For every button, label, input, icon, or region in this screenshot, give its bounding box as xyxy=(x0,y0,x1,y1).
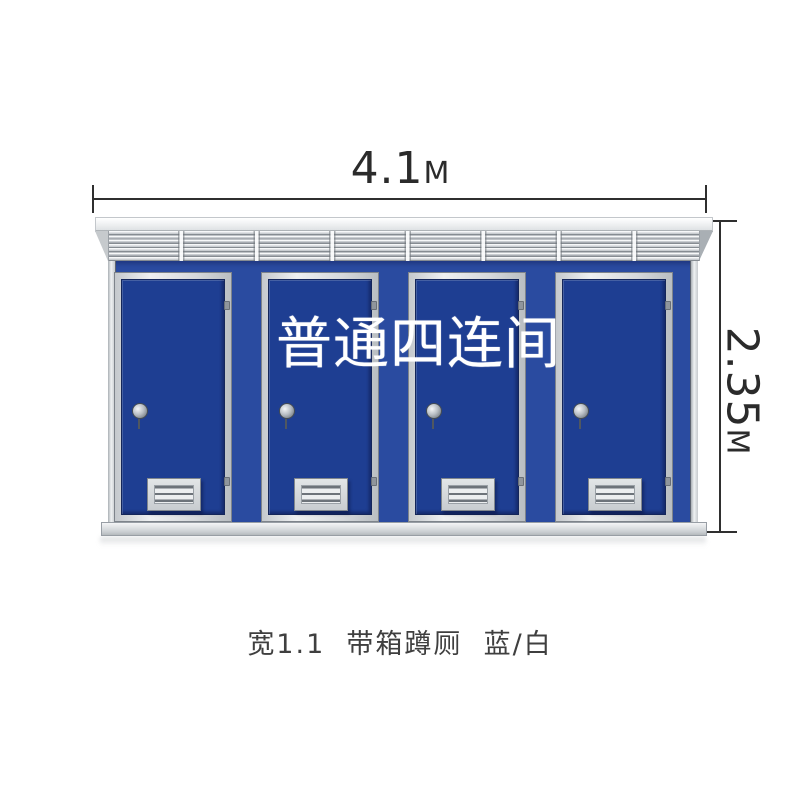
ground-shadow xyxy=(100,537,706,546)
height-value: 2.35 xyxy=(717,326,768,428)
hinge-top xyxy=(224,301,230,310)
height-dimension-label: 2.35M xyxy=(700,295,784,485)
door-knob-icon xyxy=(426,403,442,419)
width-value: 4.1 xyxy=(351,143,424,194)
product-image: 4.1M 2.35M xyxy=(0,0,800,800)
keyhole-icon xyxy=(579,419,581,429)
door-unit xyxy=(555,272,673,522)
door-vent-louver xyxy=(294,478,348,511)
overlay-title: 普通四连间 xyxy=(276,314,561,376)
width-dimension-line xyxy=(93,198,707,200)
hinge-top xyxy=(518,301,524,310)
keyhole-icon xyxy=(285,419,287,429)
width-unit: M xyxy=(424,156,450,191)
roof-eave-right xyxy=(699,231,713,261)
height-dimension-tick-bottom xyxy=(704,531,737,533)
door-vent-louver xyxy=(588,478,642,511)
door-vent-slats xyxy=(595,485,635,504)
roof-vent-louver xyxy=(108,231,700,261)
roof-cap xyxy=(95,217,713,232)
door-knob-icon xyxy=(573,403,589,419)
door-vent-slats xyxy=(448,485,488,504)
caption-text: 宽1.1 带箱蹲厕 蓝/白 xyxy=(0,622,800,661)
roof-eave-left xyxy=(95,231,108,261)
door-knob-icon xyxy=(279,403,295,419)
door-unit xyxy=(114,272,232,522)
door-unit xyxy=(261,272,379,522)
door-vent-slats xyxy=(301,485,341,504)
corner-trim-right xyxy=(690,261,698,522)
hinge-bottom xyxy=(518,477,524,486)
door-row xyxy=(114,272,674,522)
width-dimension-label: 4.1M xyxy=(93,146,707,192)
door-vent-slats xyxy=(154,485,194,504)
hinge-bottom xyxy=(665,477,671,486)
door-unit xyxy=(408,272,526,522)
door-vent-louver xyxy=(147,478,201,511)
keyhole-icon xyxy=(432,419,434,429)
height-unit: M xyxy=(720,428,755,454)
hinge-bottom xyxy=(224,477,230,486)
width-dimension-tick-right xyxy=(705,185,707,213)
hinge-top xyxy=(665,301,671,310)
hinge-top xyxy=(371,301,377,310)
base-sill xyxy=(101,522,707,536)
hinge-bottom xyxy=(371,477,377,486)
keyhole-icon xyxy=(138,419,140,429)
building-body xyxy=(108,261,698,522)
door-vent-louver xyxy=(441,478,495,511)
width-dimension-tick-left xyxy=(92,185,94,213)
door-knob-icon xyxy=(132,403,148,419)
